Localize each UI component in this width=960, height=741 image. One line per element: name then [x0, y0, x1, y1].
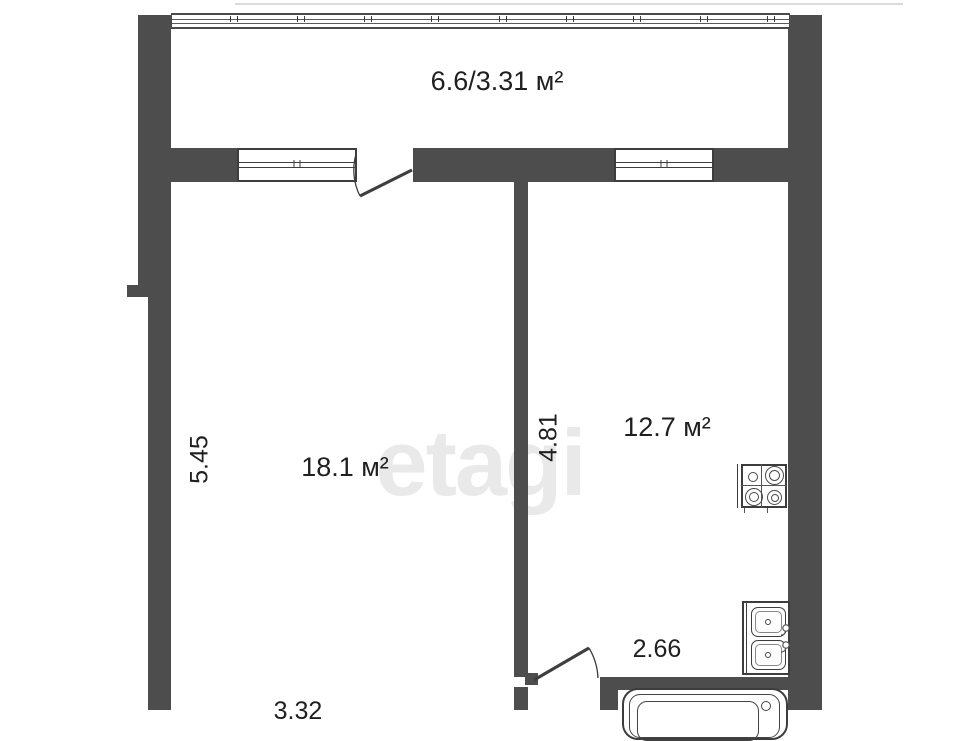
glazing-mullion-tick: [230, 16, 238, 22]
window-kitchen: [614, 148, 714, 182]
living-room-vertical-dimension: 5.45: [186, 425, 215, 495]
kitchen-door-hinge-block: [525, 673, 538, 685]
window-living-room: [237, 148, 357, 182]
glazing-mullion-tick: [499, 16, 507, 22]
kitchen-door: [534, 648, 598, 680]
wall-right: [788, 15, 822, 710]
stove-foot-tick: [767, 508, 768, 513]
wall-middle-upper: [514, 182, 528, 677]
glazing-mullions: [230, 15, 775, 23]
wall-left-lower: [148, 297, 171, 710]
stove-burner: [769, 470, 780, 481]
living-room-horizontal-dimension: 3.32: [258, 697, 338, 726]
window-center-tick: [294, 160, 301, 168]
wall-left-upper: [138, 15, 171, 297]
balcony-door: [354, 154, 412, 196]
glazing-mullion-tick: [431, 16, 439, 22]
glazing-mullion-tick: [566, 16, 574, 22]
stove-burner: [749, 492, 759, 502]
kitchen-horizontal-dimension: 2.66: [617, 635, 697, 664]
glazing-mullion-tick: [700, 16, 708, 22]
stove-burner: [748, 472, 758, 482]
glazing-mullion-tick: [767, 16, 775, 22]
wall-balcony-divider-middle: [413, 148, 614, 182]
glazing-mullion-tick: [297, 16, 305, 22]
wall-balcony-divider-right: [714, 148, 788, 182]
scan-artifact-line: [235, 3, 903, 5]
glazing-mullion-tick: [633, 16, 641, 22]
stove-icon: [737, 464, 788, 508]
wall-middle-lower: [514, 687, 528, 710]
sink-side-rail: [746, 603, 747, 673]
stove-grid-line: [741, 485, 787, 486]
bathtub-icon: [622, 688, 788, 728]
sink-drain: [765, 619, 771, 625]
balcony-glazing: [171, 13, 790, 29]
bathtub-basin: [637, 701, 759, 741]
sink-drain: [765, 652, 771, 658]
wall-balcony-divider-left: [171, 148, 237, 182]
stove-burner: [771, 494, 779, 502]
wall-bathroom-left: [600, 677, 618, 710]
glazing-mullion-tick: [364, 16, 372, 22]
kitchen-vertical-dimension: 4.81: [535, 403, 564, 473]
sink-icon: [742, 601, 790, 675]
balcony-area-label: 6.6/3.31 м²: [397, 66, 597, 97]
window-center-tick: [661, 160, 668, 168]
stove-foot-tick: [744, 508, 745, 513]
kitchen-area-label: 12.7 м²: [612, 412, 722, 443]
living-room-area-label: 18.1 м²: [290, 452, 400, 483]
sink-basin: [751, 640, 786, 670]
floor-plan-page: { "watermark": "etagi", "colors": { "wal…: [0, 0, 960, 710]
wall-left-notch: [127, 285, 138, 297]
sink-basin: [751, 607, 786, 637]
